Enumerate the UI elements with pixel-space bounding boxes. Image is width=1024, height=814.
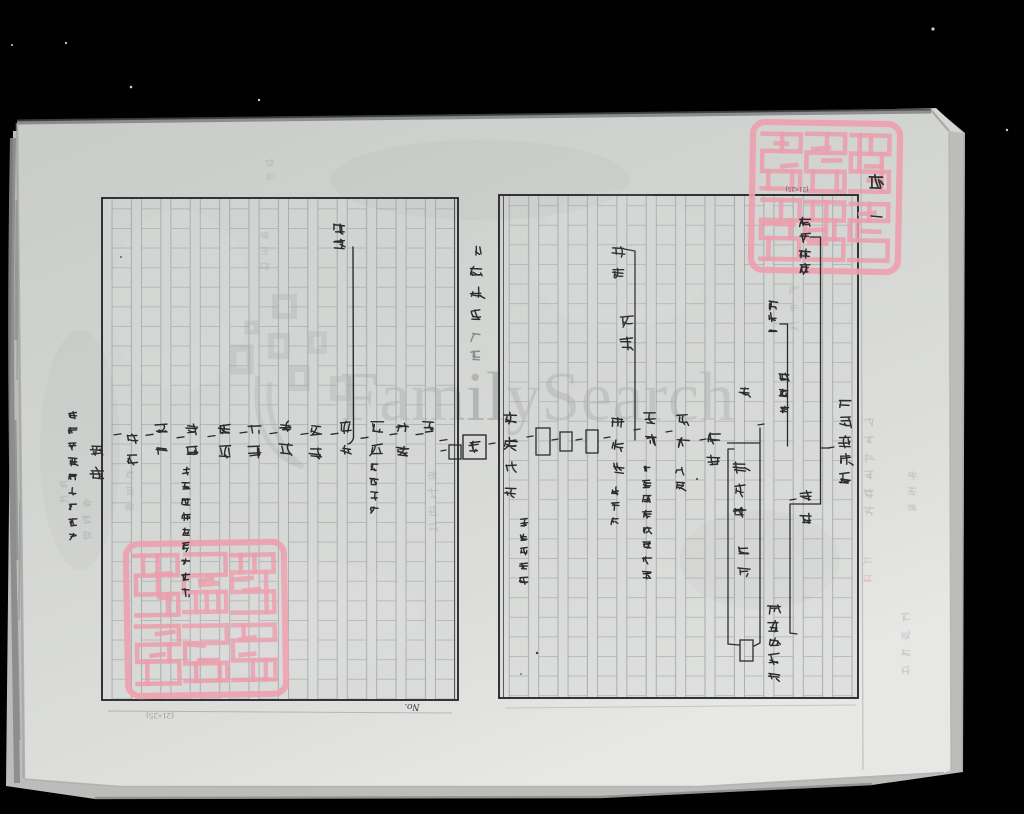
svg-text:(21×25): (21×25): [785, 185, 808, 193]
svg-text:(21×25): (21×25): [146, 711, 174, 721]
svg-text:No.: No.: [404, 701, 421, 713]
